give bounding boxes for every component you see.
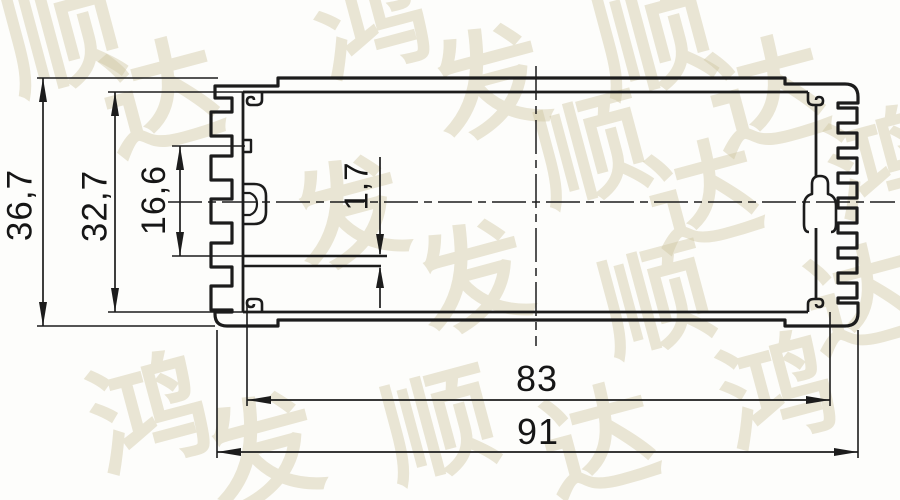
- dim-label-rail-offset: 16,6: [137, 165, 171, 235]
- dim-label-inner-width: 83: [516, 361, 558, 397]
- dim-label-overall-height: 36,7: [3, 169, 38, 241]
- dim-label-overall-width: 91: [517, 414, 559, 450]
- dim-label-slot-width: 1,7: [340, 162, 373, 211]
- dimension-labels: 36,732,716,61,78391: [0, 0, 900, 500]
- cad-drawing-canvas: 顺达鸿发顺达鸿发顺达发顺达鸿发顺达鸿: [0, 0, 900, 500]
- dim-label-inner-height: 32,7: [78, 170, 113, 242]
